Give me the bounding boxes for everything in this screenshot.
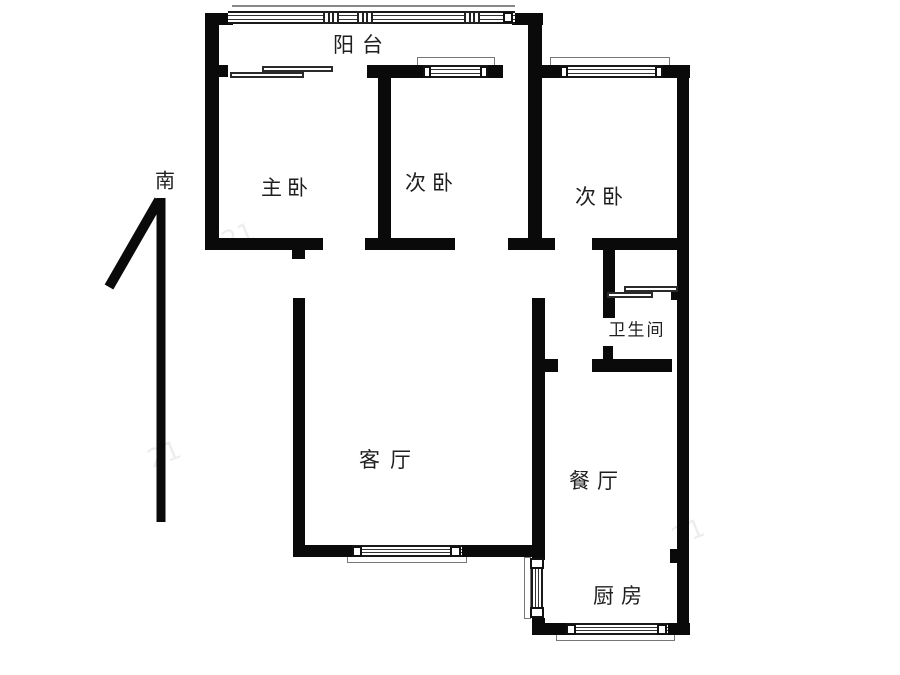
wall-bathroom-top: [592, 238, 680, 250]
balcony-sliding-door: [230, 72, 304, 78]
bathroom-sliding-door: [607, 292, 653, 298]
wall-nub-right: [670, 549, 678, 563]
living-window-sill: [347, 556, 467, 563]
wall-kitchen-bottom-right: [668, 623, 690, 635]
wall-kitchen-bottom-left: [532, 623, 570, 635]
balcony-window-mullion: [357, 11, 373, 24]
bedroom-right-window: [560, 65, 663, 78]
bedroom-right-label: 次卧: [575, 181, 629, 211]
master-bedroom-label: 主卧: [261, 172, 313, 202]
wall-master-bottom: [205, 238, 323, 250]
wall-bedroom-right-top-left: [542, 65, 561, 78]
floor-plan: 21 21 21: [0, 0, 900, 675]
living-window-jamb: [450, 546, 461, 557]
wall-bedroom-middle-left: [378, 65, 391, 250]
wall-living-bottom-left: [293, 545, 352, 557]
kitchen-label: 厨房: [593, 580, 649, 610]
balcony-label: 阳台: [333, 29, 391, 59]
bedroom-right-window-jamb: [560, 66, 568, 78]
wall-bedroom-middle-top-left: [367, 65, 423, 78]
wall-right: [677, 65, 689, 635]
bedroom-middle-window-jamb: [423, 66, 431, 78]
living-window-jamb: [352, 546, 362, 557]
wall-bathroom-left: [603, 250, 615, 318]
wall-master-door-stub: [292, 250, 305, 259]
wall-bedroom-divider: [528, 13, 542, 250]
kitchen-window-jamb: [657, 624, 667, 635]
balcony-window-mullion: [464, 11, 480, 24]
living-room-label: 客厅: [359, 444, 421, 474]
wall-balcony-stub: [219, 65, 228, 77]
kitchen-window: [566, 623, 668, 635]
south-arrow: [95, 160, 175, 535]
bedroom-middle-window-jamb: [480, 66, 488, 78]
dining-room-label: 餐厅: [569, 465, 625, 495]
bathroom-label: 卫生间: [609, 316, 666, 341]
balcony-window-mullion: [323, 11, 339, 24]
wall-mid-segment: [508, 238, 555, 250]
watermark: 21: [218, 217, 260, 257]
bedroom-right-window-jamb: [655, 66, 663, 78]
bedroom-middle-window: [423, 65, 488, 78]
bedroom-middle-label: 次卧: [405, 167, 459, 197]
wall-living-bottom-right: [462, 545, 532, 557]
compass-south-label: 南: [155, 165, 175, 194]
kitchen-side-window-jamb: [530, 607, 544, 618]
wall-bathroom-stub: [603, 346, 613, 360]
wall-dining-left: [532, 298, 545, 560]
wall-hall-b: [592, 359, 672, 372]
kitchen-window-sill: [556, 634, 675, 641]
wall-living-left: [293, 298, 305, 557]
balcony-window-outer-line: [232, 5, 515, 7]
balcony-window-jamb: [503, 12, 513, 23]
living-window: [352, 545, 462, 557]
wall-mid-under-bedroom: [365, 238, 455, 250]
kitchen-window-jamb: [566, 624, 576, 635]
wall-left: [205, 13, 219, 250]
wall-bedroom-middle-top-right: [488, 65, 503, 78]
kitchen-side-window-jamb: [530, 558, 544, 569]
